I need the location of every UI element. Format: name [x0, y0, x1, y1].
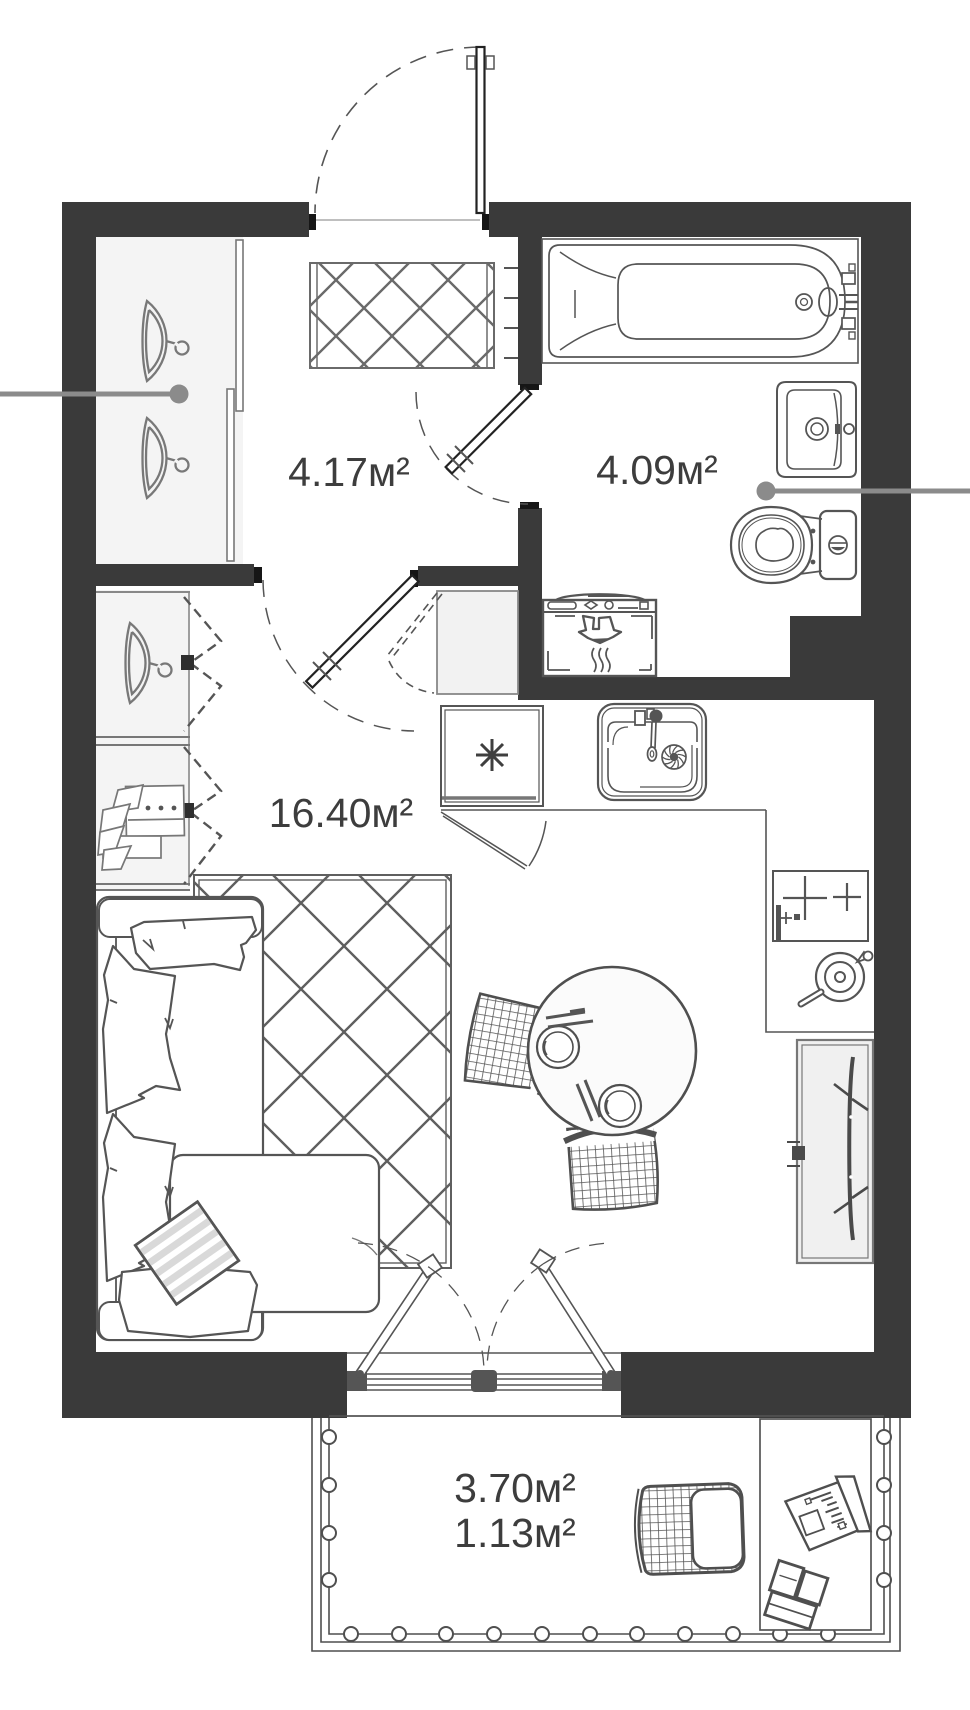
svg-text:4.17м²: 4.17м² — [288, 449, 410, 495]
svg-text:1.13м²: 1.13м² — [454, 1510, 576, 1556]
svg-text:3.70м²: 3.70м² — [454, 1465, 576, 1511]
svg-text:16.40м²: 16.40м² — [269, 790, 413, 836]
svg-text:4.09м²: 4.09м² — [596, 447, 718, 493]
